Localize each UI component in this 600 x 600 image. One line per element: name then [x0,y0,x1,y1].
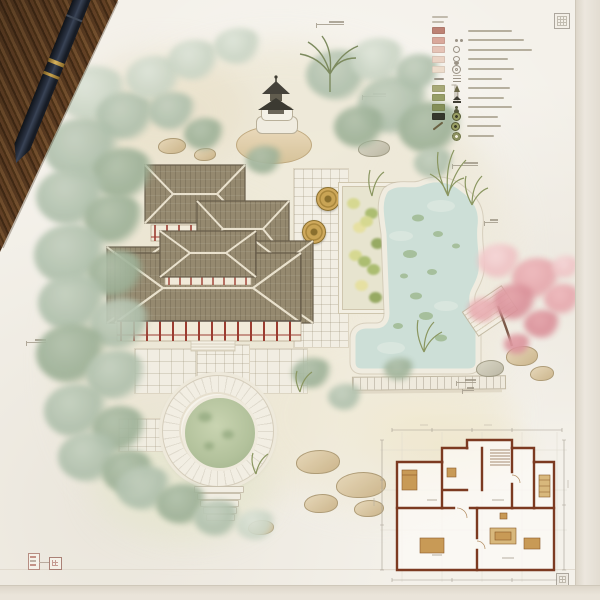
entry-step [203,507,237,514]
veranda [117,321,301,351]
legend-label-line [468,135,494,137]
scene-photo [0,0,600,600]
annotation-leader [316,24,344,25]
legend-label-line [467,125,501,127]
legend-swatch [432,104,445,111]
blossom-cluster [524,310,562,338]
stacked-rings-icon [451,54,462,64]
pond-algae [204,442,214,450]
legend-title-line [432,16,448,18]
artist-seal-right [49,557,62,570]
legend-swatch [432,66,445,73]
pond-algae [222,430,234,439]
legend-label-line [468,106,512,108]
legend-title-line [432,21,444,23]
legend-swatch [432,37,445,44]
double-ring-icon [451,64,462,74]
koi-pond [346,176,498,376]
annotation-leader [362,96,386,97]
coin-icon [450,121,461,131]
figure-icon [451,102,462,112]
legend-label-line [468,58,508,60]
legend-label-line [468,87,510,89]
legend-row [432,27,572,34]
moon-pond-water [182,395,258,471]
annotation-leader [26,342,46,343]
paired-circles-icon [451,35,462,45]
pen-gold-band [48,58,65,68]
entry-step [197,493,241,500]
annotation-leader [456,382,476,383]
legend-row [432,37,572,44]
legend-label-line [468,116,498,118]
entry-step [200,500,239,507]
legend-swatch-empty [432,133,445,140]
legend-row [432,84,572,91]
legend-row [432,46,572,53]
legend-label-line [468,78,502,80]
pond-algae [198,412,212,422]
dash-icon [434,78,444,80]
legend-label-line [468,30,512,32]
legend-row [432,94,572,101]
tree-icon [451,83,462,93]
legend-row [432,132,572,139]
legend [432,16,572,148]
annotation-leader [484,222,498,223]
blossom-cluster [504,334,532,354]
legend-row [432,75,572,82]
straw-mat-table [316,187,340,211]
garden-rock [506,346,538,366]
pen-gold-band [43,71,60,80]
garden-rock [530,366,554,381]
legend-swatch [432,85,445,92]
legend-row [432,104,572,111]
entry-step [206,514,235,521]
ground-wash [80,52,250,172]
flower-coin-icon [451,131,462,141]
legend-label-line [468,39,524,41]
small-ring-icon [451,45,462,55]
pen-clip-band [66,14,83,22]
legend-rows [432,27,572,140]
coin-icon [451,112,462,122]
branch-icon [433,122,444,131]
annotation-leader [452,165,478,166]
side-paving [118,418,168,452]
legend-swatch [432,46,445,53]
entry-step [194,486,244,493]
annotation-leader [462,390,474,391]
legend-swatch [432,94,445,101]
garden-rock [248,520,274,535]
legend-row [432,123,572,130]
seal-connector-line [39,562,49,563]
upper-tier-roof [160,231,256,285]
legend-swatch [432,56,445,63]
floor-plan [372,420,572,588]
legend-label-line [468,68,514,70]
legend-label-line [468,97,504,99]
paper-bottom-edge [0,585,600,600]
main-pavilion-complex [105,163,315,355]
legend-row [432,56,572,63]
legend-label-line [468,49,532,51]
corner-stamp-top-right [554,13,570,29]
legend-swatch [432,27,445,34]
stone-pagoda-icon [252,74,300,114]
legend-swatch [432,113,445,120]
paper-right-edge [575,0,600,600]
legend-row [432,65,572,72]
legend-icon-empty [451,26,462,36]
pagoda-icon [451,93,462,103]
wave-icon [451,74,462,84]
legend-row [432,113,572,120]
